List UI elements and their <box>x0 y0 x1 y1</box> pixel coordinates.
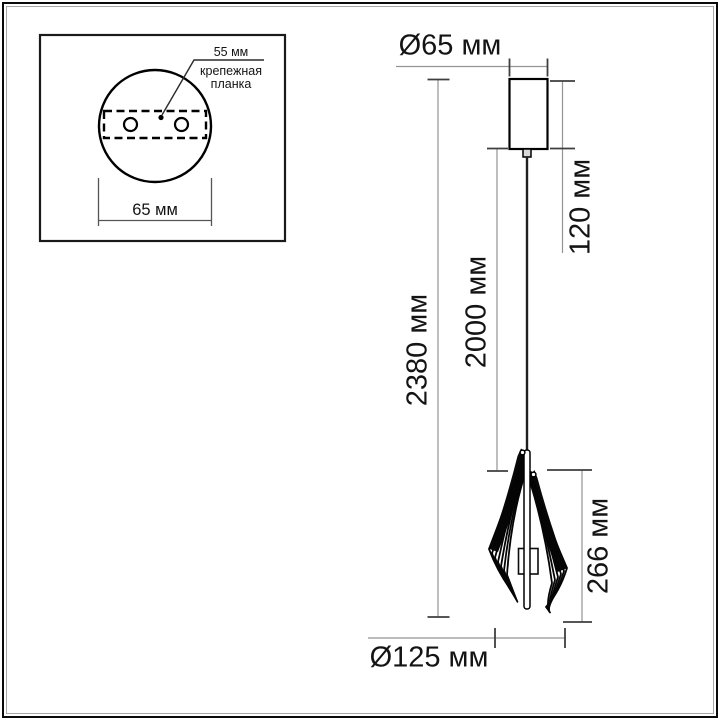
shade-diameter-label: Ø125 мм <box>370 644 489 673</box>
plate-offset-label: 55 мм <box>214 46 249 59</box>
mounting-plate-label: крепежная планка <box>200 65 262 91</box>
screw-hole-right <box>175 118 188 131</box>
cord-length-label: 2000 мм <box>463 256 492 368</box>
petal-curl-lower <box>531 472 536 477</box>
ticks <box>510 59 548 77</box>
total-height-label: 2380 мм <box>404 294 433 406</box>
plate-width-label: 65 мм <box>132 202 178 219</box>
screw-hole-left <box>124 118 137 131</box>
technical-drawing-page: 55 мм крепежная планка 65 мм Ø65 мм 120 … <box>0 0 720 720</box>
canopy-top-view-circle <box>99 70 211 182</box>
canopy-diameter-label: Ø65 мм <box>399 32 502 61</box>
petal-curl-top <box>520 450 525 455</box>
shade-right-ribs <box>531 472 567 613</box>
drawing-canvas <box>0 0 720 720</box>
center-point-dot <box>158 115 163 120</box>
lamp-rod <box>524 450 530 609</box>
shade-height-label: 266 мм <box>585 498 614 594</box>
mounting-plate-label-line2: планка <box>200 78 262 91</box>
pendant-lamp <box>489 79 567 613</box>
cord-grip <box>523 149 531 157</box>
shade-left-ribs <box>489 452 527 602</box>
canopy-height-label: 120 мм <box>567 159 596 255</box>
canopy <box>510 79 548 149</box>
lampshade <box>489 449 567 613</box>
